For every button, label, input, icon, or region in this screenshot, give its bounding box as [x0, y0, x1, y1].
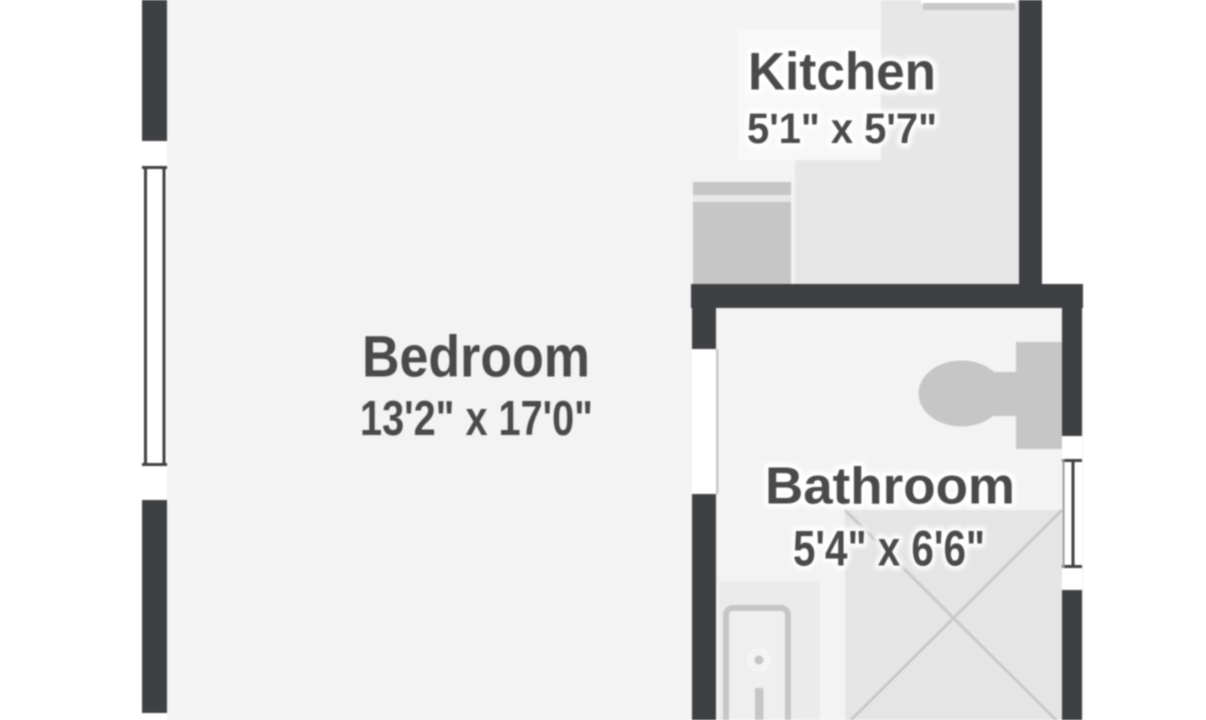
svg-text:5'1" x 5'7": 5'1" x 5'7"	[747, 105, 937, 153]
svg-text:Bedroom: Bedroom	[362, 325, 590, 390]
svg-text:13'2" x 17'0": 13'2" x 17'0"	[360, 392, 593, 446]
svg-text:Bathroom: Bathroom	[765, 458, 1015, 516]
svg-text:Kitchen: Kitchen	[748, 43, 936, 102]
svg-text:5'4" x 6'6": 5'4" x 6'6"	[793, 521, 985, 577]
